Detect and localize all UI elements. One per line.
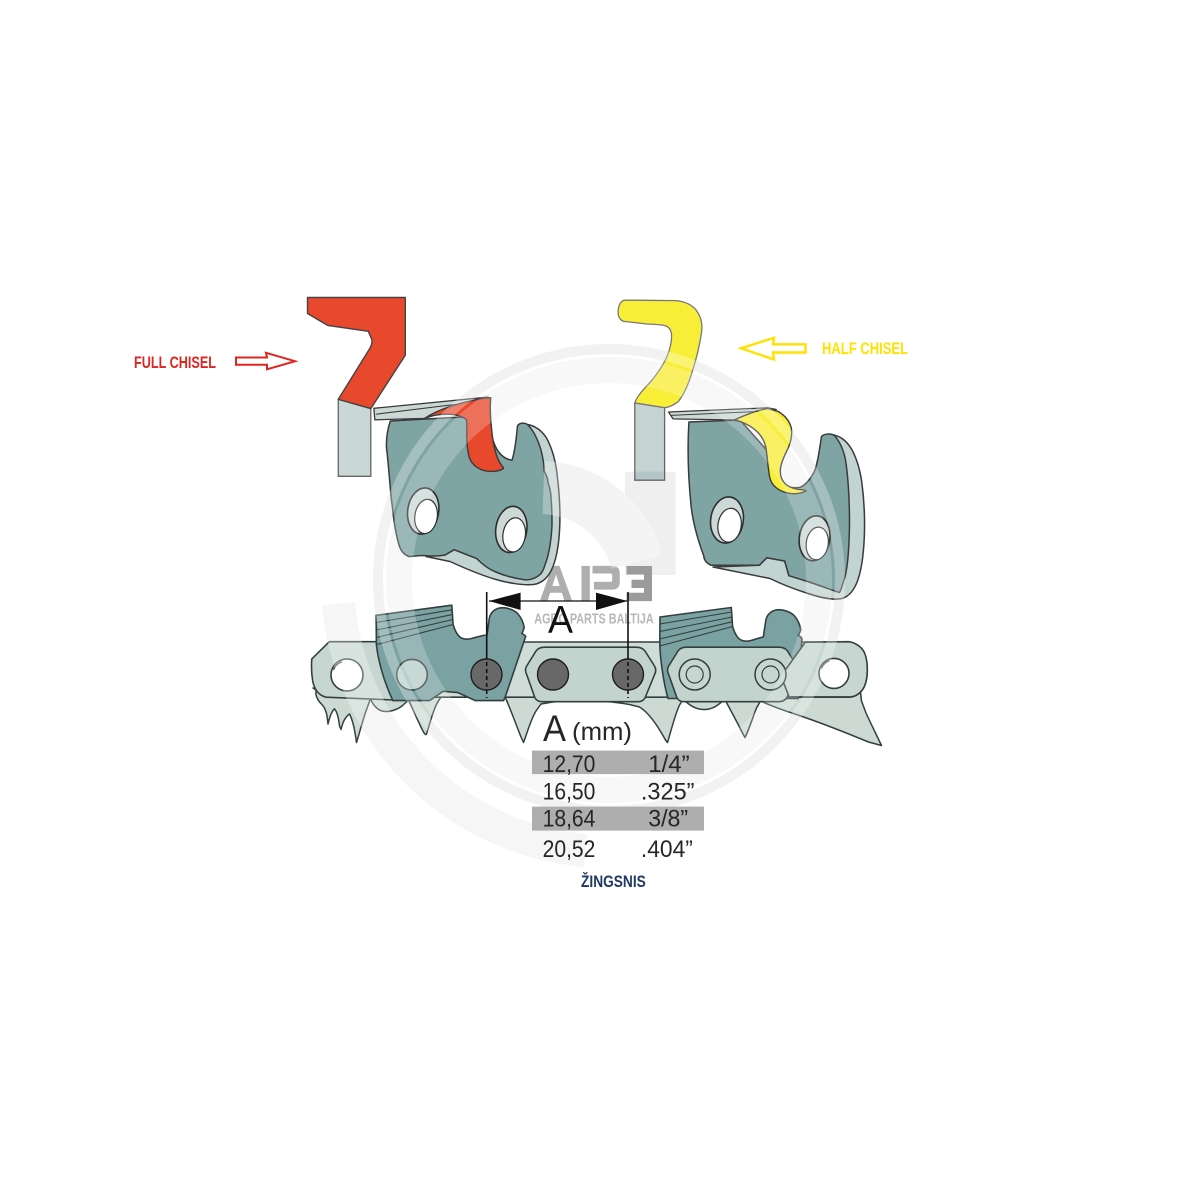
svg-text:18,64: 18,64 — [543, 806, 596, 833]
svg-text:12,70: 12,70 — [543, 751, 596, 778]
svg-text:A: A — [548, 599, 573, 642]
svg-text:FULL CHISEL: FULL CHISEL — [134, 353, 216, 372]
svg-text:(mm): (mm) — [572, 718, 632, 746]
svg-text:.404”: .404” — [641, 836, 693, 863]
svg-text:HALF CHISEL: HALF CHISEL — [822, 339, 908, 358]
svg-text:1/4”: 1/4” — [648, 751, 690, 778]
svg-text:3/8”: 3/8” — [648, 806, 688, 833]
svg-text:20,52: 20,52 — [543, 836, 596, 863]
svg-text:A: A — [543, 708, 566, 749]
svg-text:ŽINGSNIS: ŽINGSNIS — [581, 872, 646, 891]
svg-text:16,50: 16,50 — [543, 778, 596, 805]
svg-text:.325”: .325” — [641, 778, 695, 805]
